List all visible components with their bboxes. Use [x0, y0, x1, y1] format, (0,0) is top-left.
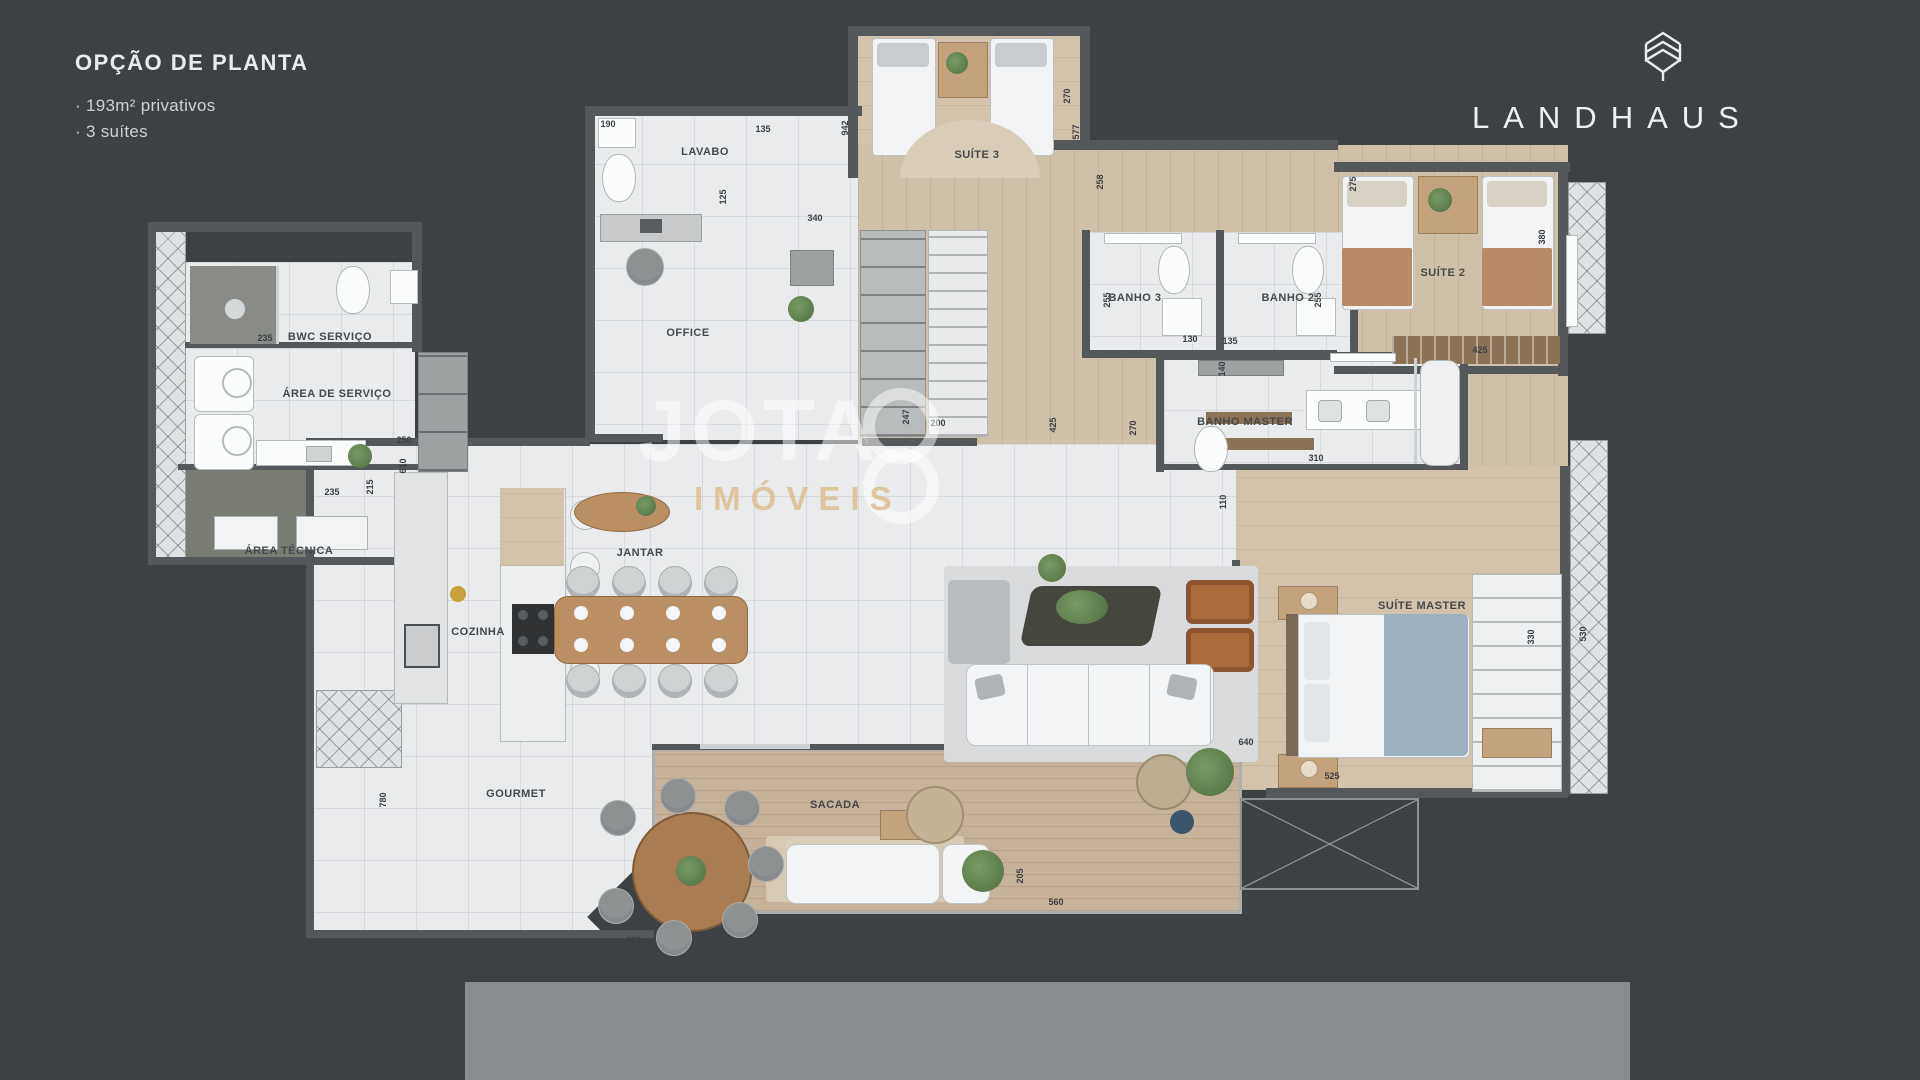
dimension-label: 270 [1062, 88, 1072, 103]
room-label-bwc-servico: BWC SERVIÇO [288, 331, 372, 343]
room-label-area-de-servico: ÁREA DE SERVIÇO [283, 388, 392, 400]
dimension-label: 640 [1238, 737, 1253, 747]
dimension-label: 560 [1048, 897, 1063, 907]
dimension-label: 235 [514, 272, 524, 287]
room-label-banho-3: BANHO 3 [1108, 292, 1161, 304]
room-label-jantar: JANTAR [617, 547, 664, 559]
dimension-label: 110 [1218, 495, 1228, 510]
room-label-banho-2: BANHO 2 [1261, 292, 1314, 304]
room-label-suite-master: SUÍTE MASTER [1378, 600, 1466, 612]
dimension-label: 135 [1222, 336, 1237, 346]
dimension-label: 530 [1578, 626, 1588, 641]
dimension-label: 270 [1128, 420, 1138, 435]
dimension-label: 190 [600, 119, 615, 129]
dimension-label: 255 [1102, 292, 1112, 307]
dimension-label: 310 [1308, 453, 1323, 463]
dimension-label: 275 [1348, 176, 1358, 191]
dimension-label: 942 [840, 120, 850, 135]
dimension-label: 780 [378, 792, 388, 807]
room-label-suite-2: SUÍTE 2 [1420, 267, 1465, 279]
dimension-label: 380 [1537, 229, 1547, 244]
room-label-gourmet: GOURMET [486, 788, 546, 800]
dimension-label: 525 [1324, 771, 1339, 781]
dimension-label: 330 [1526, 629, 1536, 644]
dimension-label: 225 [544, 272, 554, 287]
room-label-suite-3: SUÍTE 3 [954, 149, 999, 161]
bottom-bar [465, 982, 1630, 1080]
dimension-label: 215 [365, 479, 375, 494]
dimension-label: 250 [396, 435, 411, 445]
dimension-label: 425 [1048, 417, 1058, 432]
dimension-label: 125 [718, 189, 728, 204]
dimension-label: 140 [1217, 361, 1227, 376]
dimension-label: 340 [807, 213, 822, 223]
room-label-area-tecnica: ÁREA TÉCNICA [245, 545, 334, 557]
dimension-label: 425 [1472, 345, 1487, 355]
dimension-label: 577 [1071, 124, 1081, 139]
dimension-label: 258 [1095, 174, 1105, 189]
room-label-banho-master: BANHO MASTER [1197, 416, 1293, 428]
dimension-label: 135 [755, 124, 770, 134]
dimension-label: 420 [625, 935, 640, 945]
room-label-cozinha: COZINHA [451, 626, 505, 638]
dimension-label: 235 [324, 487, 339, 497]
room-label-lavabo: LAVABO [681, 146, 729, 158]
watermark-imoveis: IMÓVEIS [694, 480, 902, 518]
watermark-jota: JOTA [638, 382, 881, 481]
room-label-sacada: SACADA [810, 799, 860, 811]
labels-layer: LAVABOSUÍTE 3OFFICEBWC SERVIÇOÁREA DE SE… [0, 0, 1920, 1080]
floor-plan: LAVABOSUÍTE 3OFFICEBWC SERVIÇOÁREA DE SE… [0, 0, 1920, 1080]
dimension-label: 255 [1313, 292, 1323, 307]
room-label-office: OFFICE [666, 327, 709, 339]
dimension-label: 130 [1182, 334, 1197, 344]
dimension-label: 205 [1015, 868, 1025, 883]
dimension-label: 610 [398, 458, 408, 473]
dimension-label: 235 [257, 333, 272, 343]
